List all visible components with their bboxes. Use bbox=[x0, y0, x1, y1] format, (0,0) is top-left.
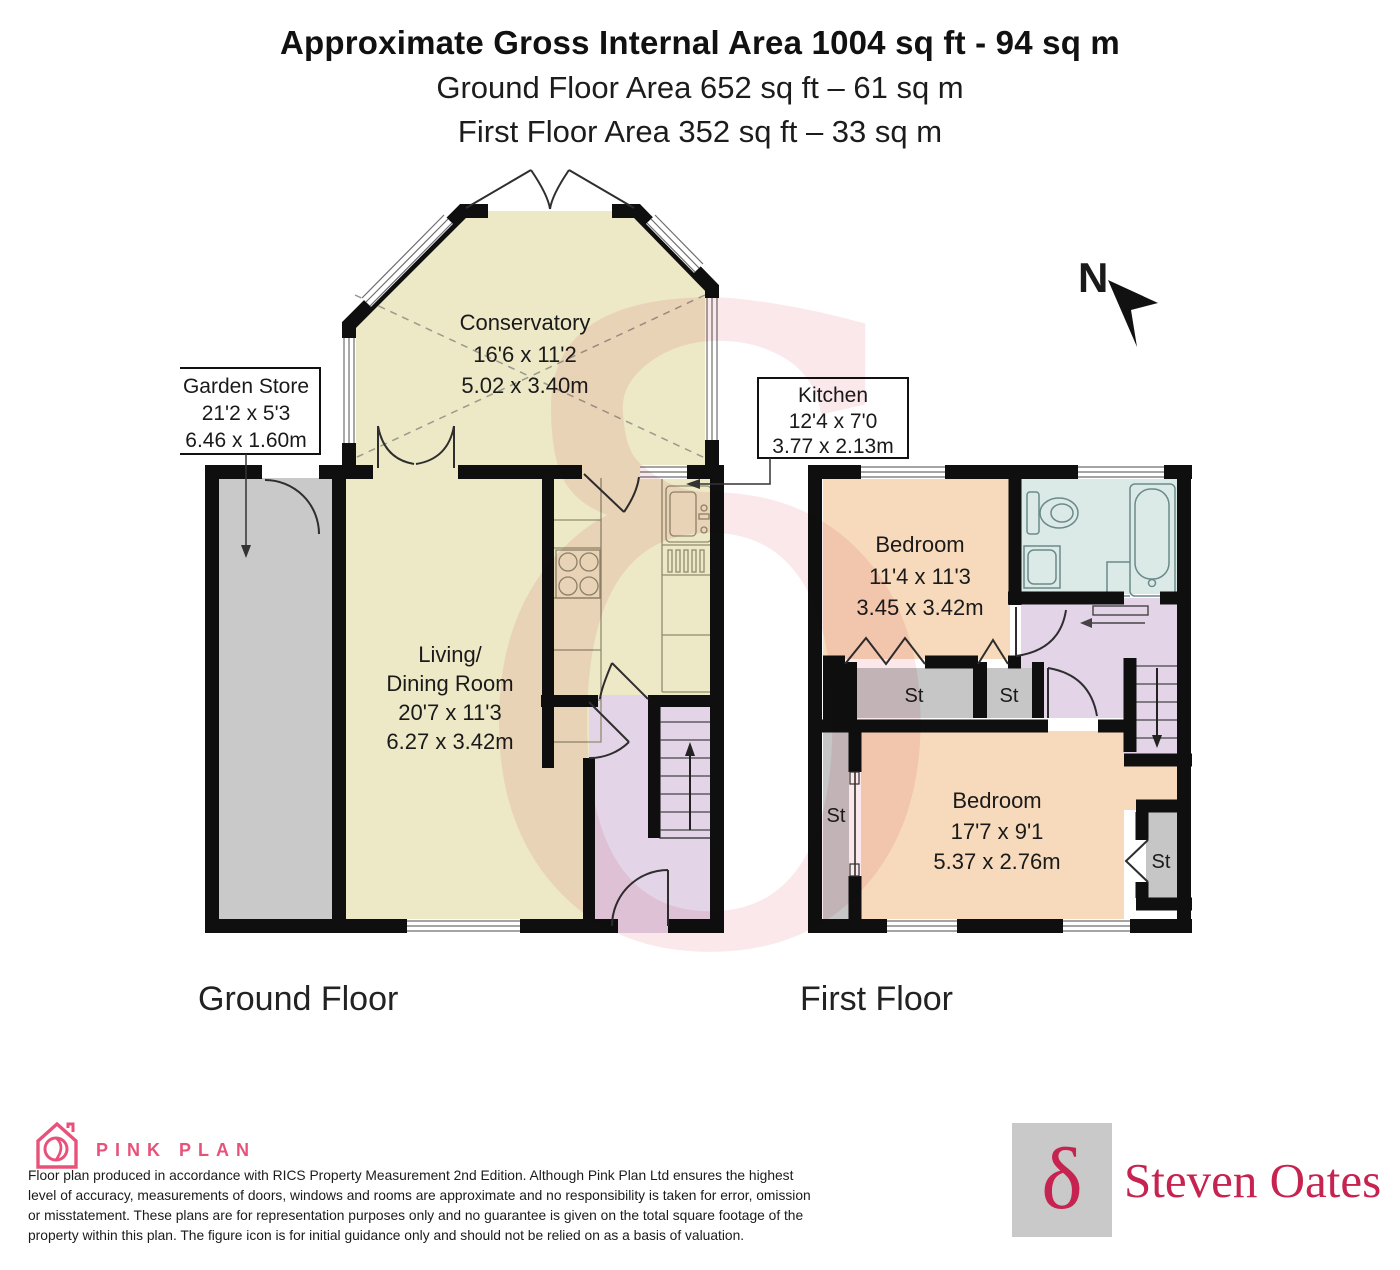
conservatory-room bbox=[349, 211, 712, 471]
north-label: N bbox=[1078, 254, 1108, 301]
sliding-door bbox=[850, 772, 859, 876]
first-floor-caption: First Floor bbox=[800, 980, 953, 1019]
bedroom1-name: Bedroom bbox=[875, 532, 964, 557]
bedroom2-name: Bedroom bbox=[952, 788, 1041, 813]
bedroom1-imperial: 11'4 x 11'3 bbox=[869, 564, 971, 589]
disclaimer-line-3: or misstatement. These plans are for rep… bbox=[28, 1206, 838, 1226]
conservatory-metric: 5.02 x 3.40m bbox=[461, 373, 588, 398]
pink-plan-brand: PINK PLAN bbox=[96, 1140, 256, 1161]
title-block: Approximate Gross Internal Area 1004 sq … bbox=[0, 24, 1400, 150]
garden-store-name: Garden Store bbox=[183, 375, 309, 398]
ground-floor-caption: Ground Floor bbox=[198, 980, 398, 1019]
agency-logo-box: δ bbox=[1012, 1123, 1112, 1237]
page-title: Approximate Gross Internal Area 1004 sq … bbox=[0, 24, 1400, 62]
subtitle-first-floor-area: First Floor Area 352 sq ft – 33 sq m bbox=[0, 114, 1400, 150]
conservatory-name: Conservatory bbox=[460, 310, 591, 335]
bathroom-room bbox=[1021, 479, 1177, 594]
disclaimer-text: Floor plan produced in accordance with R… bbox=[28, 1166, 838, 1246]
living-imperial: 20'7 x 11'3 bbox=[398, 700, 501, 725]
disclaimer-line-2: level of accuracy, measurements of doors… bbox=[28, 1186, 838, 1206]
storage2-label: St bbox=[1000, 685, 1019, 707]
agency-name: Steven Oates bbox=[1124, 1152, 1381, 1209]
north-arrow-icon bbox=[1108, 280, 1158, 347]
subtitle-ground-floor-area: Ground Floor Area 652 sq ft – 61 sq m bbox=[0, 70, 1400, 106]
kitchen-imperial: 12'4 x 7'0 bbox=[789, 410, 878, 433]
living-name-line2: Dining Room bbox=[386, 671, 513, 696]
agency-delta-icon: δ bbox=[1041, 1136, 1082, 1224]
first-floor-plan: Bedroom 11'4 x 11'3 3.45 x 3.42m Bedroom… bbox=[795, 440, 1205, 950]
pink-plan-house-icon bbox=[30, 1118, 84, 1172]
bedroom2-metric: 5.37 x 2.76m bbox=[933, 849, 1060, 874]
bedroom2-imperial: 17'7 x 9'1 bbox=[951, 819, 1044, 844]
garden-store-imperial: 21'2 x 5'3 bbox=[202, 402, 291, 425]
bedroom1-metric: 3.45 x 3.42m bbox=[856, 595, 983, 620]
living-name-line1: Living/ bbox=[418, 642, 482, 667]
garden-store-room bbox=[219, 478, 332, 925]
disclaimer-line-4: property within this plan. The figure ic… bbox=[28, 1226, 838, 1246]
north-compass: N bbox=[1050, 238, 1190, 368]
storage-left-room bbox=[823, 731, 849, 925]
storage-left-label: St bbox=[827, 805, 846, 827]
living-metric: 6.27 x 3.42m bbox=[386, 729, 513, 754]
disclaimer-line-1: Floor plan produced in accordance with R… bbox=[28, 1166, 838, 1186]
storage-right-label: St bbox=[1152, 851, 1171, 873]
kitchen-name: Kitchen bbox=[798, 384, 868, 407]
conservatory-imperial: 16'6 x 11'2 bbox=[473, 342, 576, 367]
storage1-label: St bbox=[905, 685, 924, 707]
garden-store-metric: 6.46 x 1.60m bbox=[185, 429, 306, 452]
